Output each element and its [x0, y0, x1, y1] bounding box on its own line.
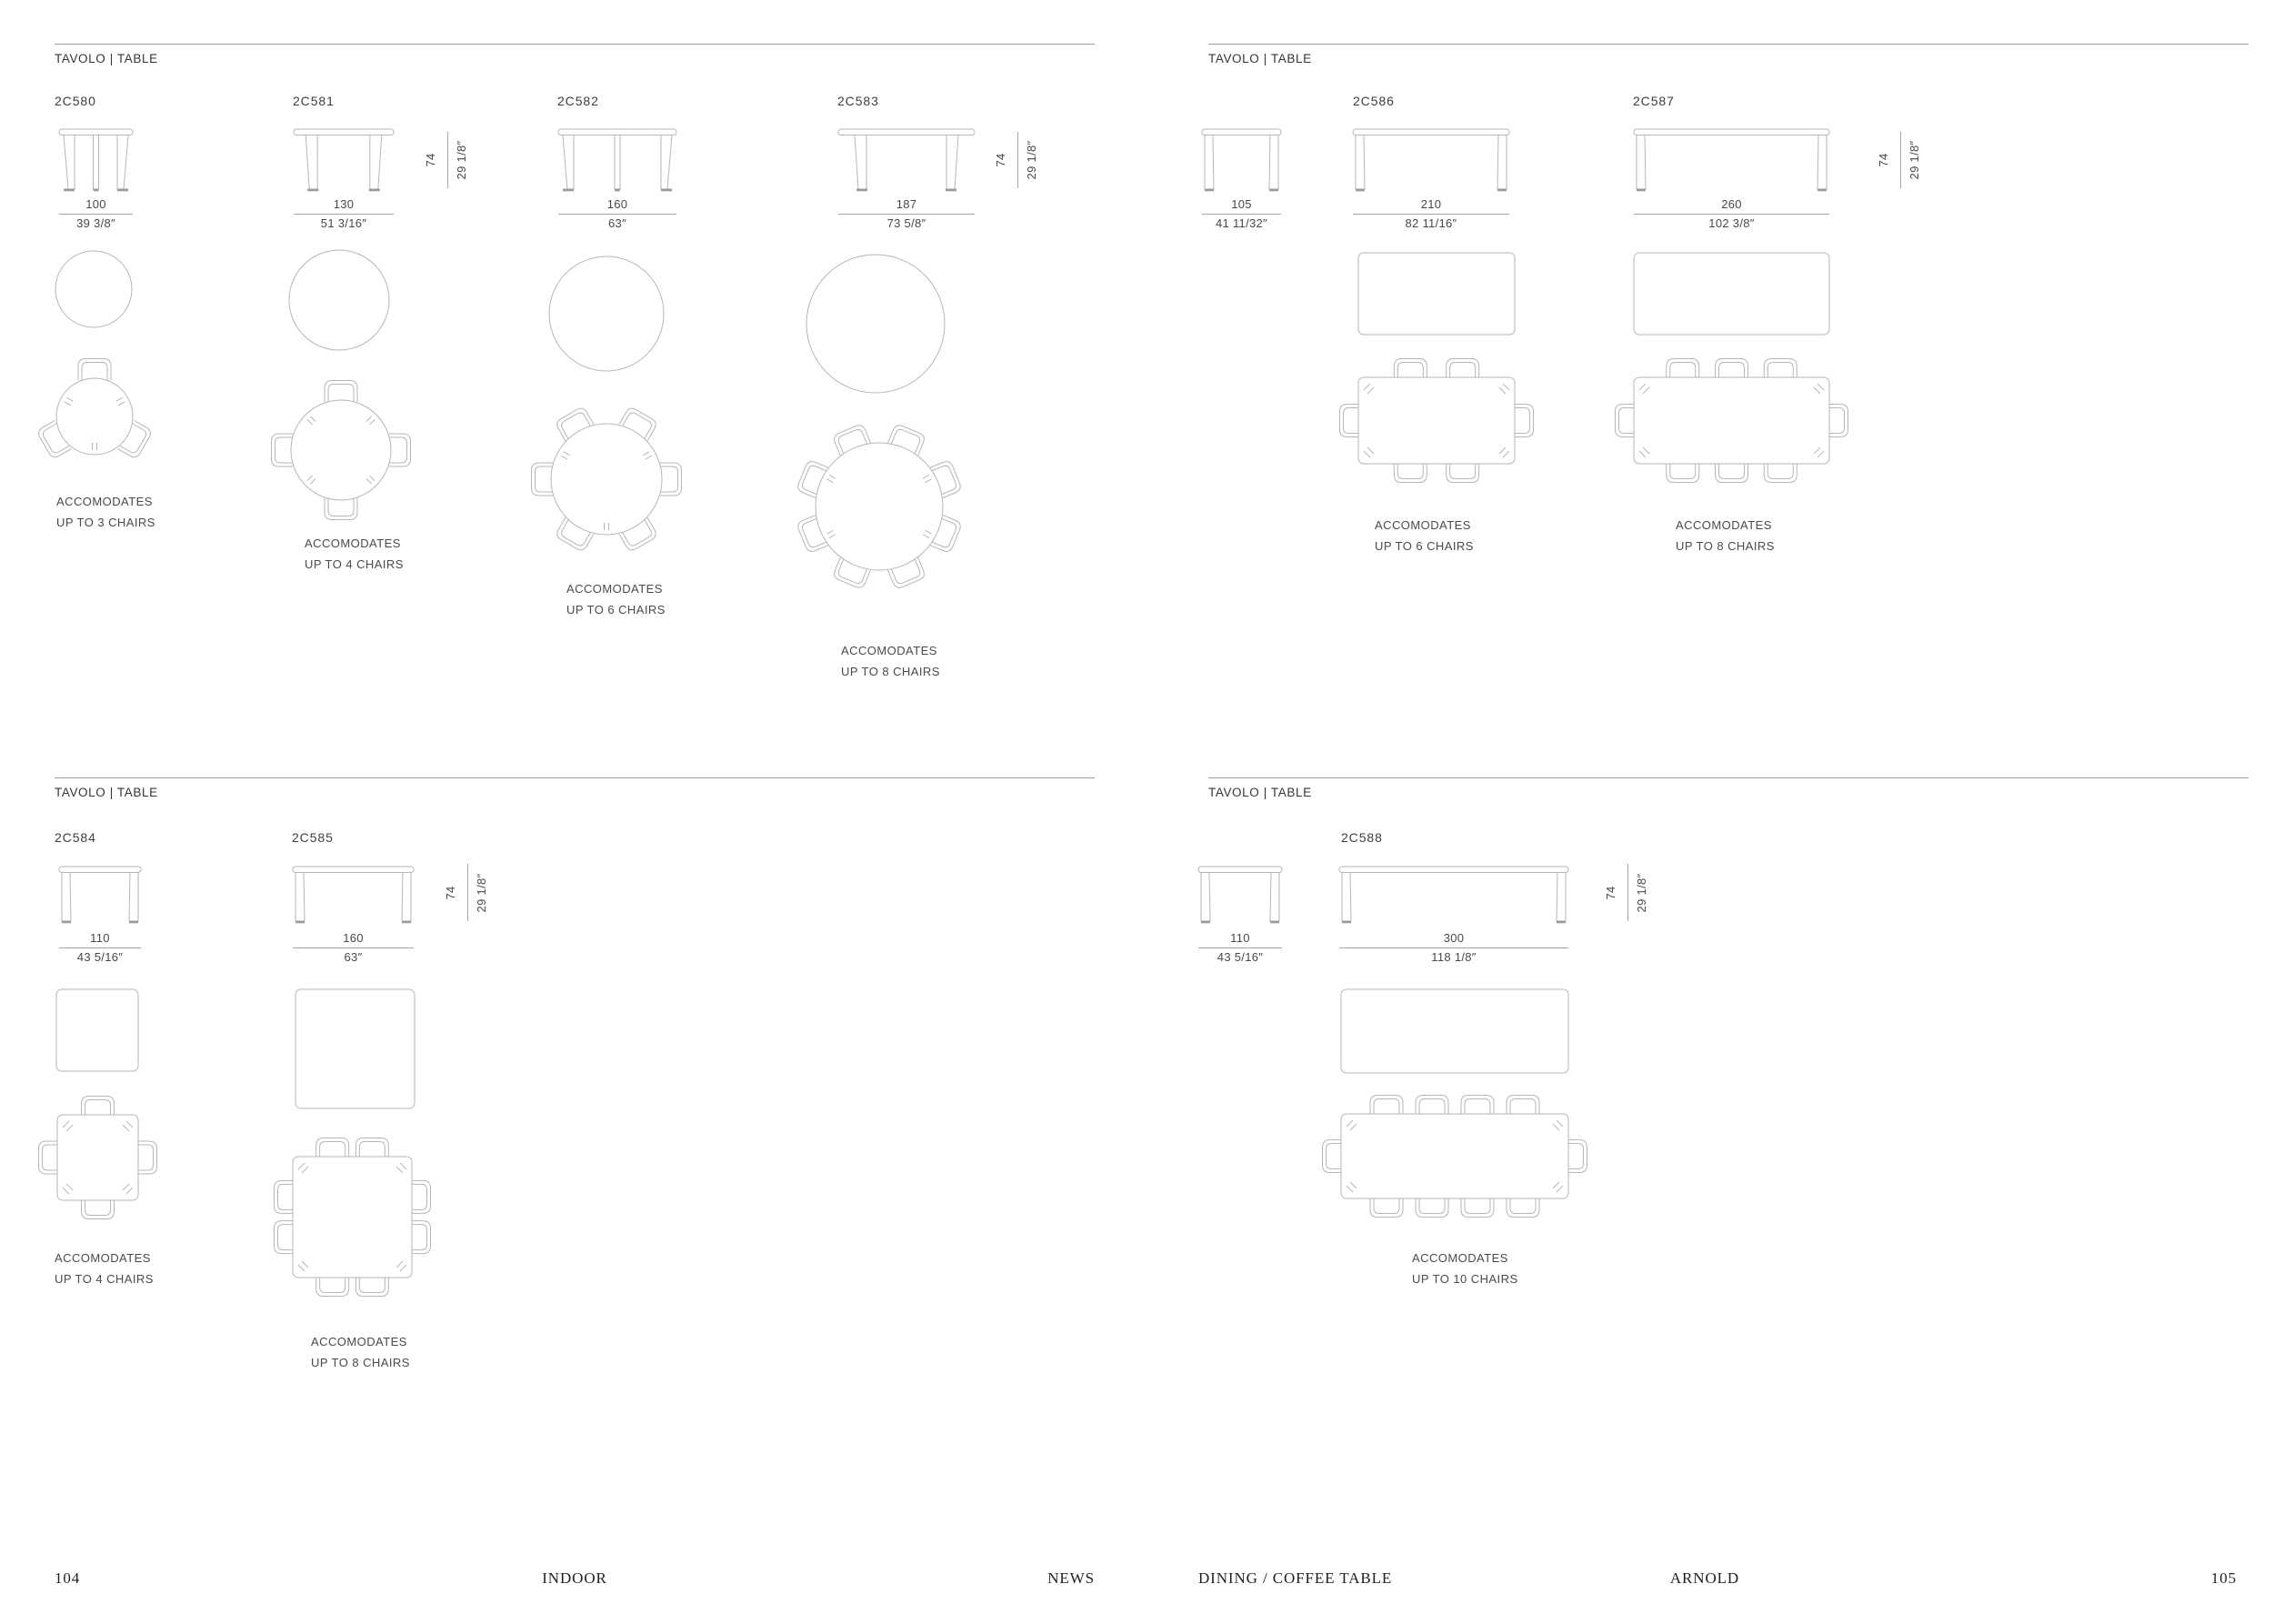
product-code-2c587: 2C587 — [1633, 94, 1675, 108]
footer-category-right: DINING / COFFEE TABLE — [1198, 1569, 1392, 1588]
width-dimension: 130 51 3/16″ — [294, 197, 394, 231]
table-front-view — [57, 127, 135, 195]
table-side-view — [1200, 127, 1283, 195]
section-rule — [55, 777, 1095, 778]
footer-collection-tag: NEWS — [913, 1569, 1095, 1588]
accommodates-label: ACCOMODATES UP TO 6 CHAIRS — [566, 578, 666, 620]
table-front-view — [1337, 865, 1570, 927]
width-dimension: 300 118 1/8″ — [1339, 931, 1568, 965]
table-front-view — [556, 127, 678, 195]
table-top-view — [1357, 251, 1517, 336]
table-top-view — [55, 987, 140, 1073]
table-front-view — [291, 865, 416, 927]
width-dimension: 260 102 3/8″ — [1634, 197, 1829, 231]
width-dimension: 160 63″ — [293, 931, 414, 965]
height-dimension-line — [1627, 864, 1628, 921]
width-dimension: 110 43 5/16″ — [59, 931, 141, 965]
accommodates-label: ACCOMODATES UP TO 10 CHAIRS — [1412, 1248, 1518, 1289]
accommodates-label: ACCOMODATES UP TO 4 CHAIRS — [55, 1248, 154, 1289]
product-code-2c584: 2C584 — [55, 830, 96, 845]
table-chairs-plan — [267, 1131, 437, 1303]
height-dimension-line — [467, 864, 468, 921]
table-chairs-plan — [32, 1089, 164, 1226]
depth-dimension: 105 41 11/32″ — [1202, 197, 1281, 231]
table-top-view — [287, 248, 391, 352]
height-dimension-line — [1017, 132, 1018, 188]
height-dimension-in: 29 1/8″ — [474, 861, 490, 925]
table-top-view — [294, 987, 416, 1110]
product-code-2c581: 2C581 — [293, 94, 335, 108]
product-code-2c582: 2C582 — [557, 94, 599, 108]
table-top-view — [805, 253, 946, 395]
table-chairs-plan — [791, 418, 967, 595]
width-dimension: 160 63″ — [558, 197, 676, 231]
height-dimension-cm: 74 — [1876, 128, 1892, 192]
product-code-2c580: 2C580 — [55, 94, 96, 108]
table-top-view — [547, 255, 666, 373]
section-header: TAVOLO | TABLE — [55, 52, 158, 65]
table-chairs-plan — [1333, 352, 1540, 489]
product-code-2c588: 2C588 — [1341, 830, 1383, 845]
height-dimension-in: 29 1/8″ — [454, 128, 470, 192]
table-chairs-plan — [32, 354, 157, 479]
accommodates-label: ACCOMODATES UP TO 8 CHAIRS — [311, 1331, 410, 1373]
table-top-view — [1632, 251, 1831, 336]
section-header: TAVOLO | TABLE — [1208, 786, 1312, 799]
table-chairs-plan — [1608, 352, 1855, 489]
product-code-2c586: 2C586 — [1353, 94, 1395, 108]
height-dimension-in: 29 1/8″ — [1634, 861, 1650, 925]
width-dimension: 100 39 3/8″ — [59, 197, 133, 231]
accommodates-label: ACCOMODATES UP TO 4 CHAIRS — [305, 533, 404, 575]
section-rule — [1208, 777, 2248, 778]
table-front-view — [292, 127, 396, 195]
table-chairs-plan — [1316, 1088, 1594, 1224]
page-number-left: 104 — [55, 1569, 80, 1588]
height-dimension-line — [447, 132, 448, 188]
accommodates-label: ACCOMODATES UP TO 3 CHAIRS — [56, 491, 155, 533]
height-dimension-in: 29 1/8″ — [1907, 128, 1923, 192]
section-header: TAVOLO | TABLE — [55, 786, 158, 799]
height-dimension-cm: 74 — [443, 861, 459, 925]
table-chairs-plan — [266, 376, 416, 525]
product-code-2c585: 2C585 — [292, 830, 334, 845]
product-code-2c583: 2C583 — [837, 94, 879, 108]
footer-product-name: ARNOLD — [1568, 1569, 1841, 1588]
width-dimension: 187 73 5/8″ — [838, 197, 975, 231]
table-front-view — [57, 865, 143, 927]
height-dimension-cm: 74 — [423, 128, 439, 192]
page-number-right: 105 — [2055, 1569, 2237, 1588]
table-front-view — [1351, 127, 1511, 195]
table-side-view — [1197, 865, 1284, 927]
table-front-view — [836, 127, 976, 195]
table-chairs-plan — [526, 399, 686, 559]
section-rule — [55, 44, 1095, 45]
table-top-view — [1339, 987, 1570, 1075]
height-dimension-line — [1900, 132, 1901, 188]
accommodates-label: ACCOMODATES UP TO 8 CHAIRS — [841, 640, 940, 682]
table-front-view — [1632, 127, 1831, 195]
footer-category-left: INDOOR — [438, 1569, 711, 1588]
section-header: TAVOLO | TABLE — [1208, 52, 1312, 65]
catalog-spread: TAVOLO | TABLE TAVOLO | TABLE TAVOLO | T… — [0, 0, 2273, 1624]
height-dimension-in: 29 1/8″ — [1024, 128, 1040, 192]
height-dimension-cm: 74 — [1603, 861, 1619, 925]
accommodates-label: ACCOMODATES UP TO 6 CHAIRS — [1375, 515, 1474, 556]
section-rule — [1208, 44, 2248, 45]
height-dimension-cm: 74 — [993, 128, 1009, 192]
depth-dimension: 110 43 5/16″ — [1198, 931, 1282, 965]
accommodates-label: ACCOMODATES UP TO 8 CHAIRS — [1676, 515, 1775, 556]
table-top-view — [54, 249, 134, 329]
width-dimension: 210 82 11/16″ — [1353, 197, 1509, 231]
